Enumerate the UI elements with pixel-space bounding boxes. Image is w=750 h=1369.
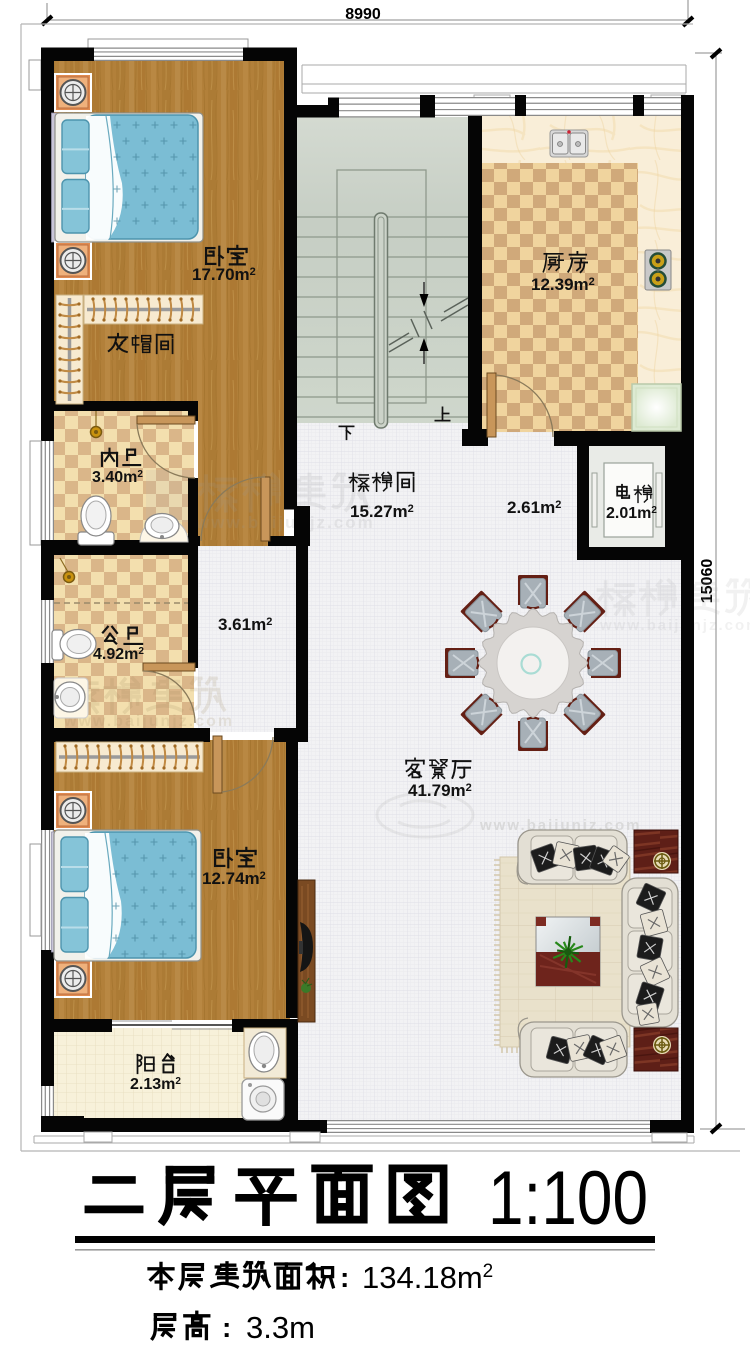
svg-text:www.baijunjz.com: www.baijunjz.com xyxy=(599,617,750,634)
svg-text:1:100: 1:100 xyxy=(488,1156,648,1241)
svg-text::: : xyxy=(222,1312,231,1343)
svg-text:www.baijunjz.com: www.baijunjz.com xyxy=(195,513,375,532)
svg-text:3.40m2: 3.40m2 xyxy=(92,469,143,486)
svg-text:12.74m2: 12.74m2 xyxy=(202,869,266,888)
svg-text:15.27m2: 15.27m2 xyxy=(350,502,414,521)
svg-text:2.61m2: 2.61m2 xyxy=(507,498,561,517)
svg-text:12.39m2: 12.39m2 xyxy=(531,275,595,294)
svg-text:2.13m2: 2.13m2 xyxy=(130,1076,181,1093)
svg-text:134.18m2: 134.18m2 xyxy=(362,1260,493,1295)
svg-text:3.3m: 3.3m xyxy=(246,1310,315,1345)
svg-text::: : xyxy=(340,1262,349,1293)
svg-text:8990: 8990 xyxy=(345,6,381,23)
svg-text:www.baijunjz.com: www.baijunjz.com xyxy=(63,713,234,730)
svg-text:17.70m2: 17.70m2 xyxy=(192,265,256,284)
svg-text:2.01m2: 2.01m2 xyxy=(606,505,657,522)
svg-text:41.79m2: 41.79m2 xyxy=(408,781,472,800)
svg-text:3.61m2: 3.61m2 xyxy=(218,615,272,634)
svg-text:4.92m2: 4.92m2 xyxy=(93,646,144,663)
